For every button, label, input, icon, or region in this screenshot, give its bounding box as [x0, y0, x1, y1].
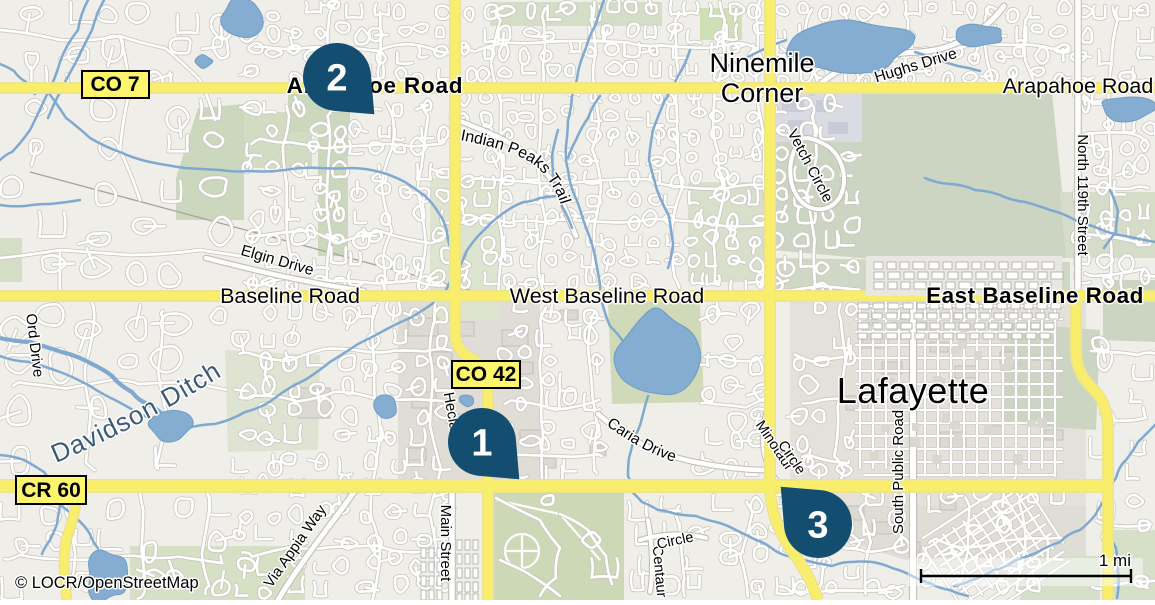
- svg-text:North 119th Street: North 119th Street: [1074, 134, 1091, 256]
- svg-text:3: 3: [807, 505, 828, 547]
- svg-text:South Public Road: South Public Road: [890, 410, 907, 534]
- svg-text:Corner: Corner: [721, 78, 804, 108]
- svg-text:Main Street: Main Street: [437, 505, 454, 583]
- svg-text:East Baseline Road: East Baseline Road: [926, 283, 1144, 308]
- svg-text:Arapahoe Road: Arapahoe Road: [1003, 74, 1154, 98]
- svg-text:Baseline Road: Baseline Road: [220, 284, 360, 308]
- svg-text:© LOCR/OpenStreetMap: © LOCR/OpenStreetMap: [15, 574, 199, 592]
- svg-text:Ninemile: Ninemile: [709, 48, 814, 78]
- svg-text:CO 42: CO 42: [456, 363, 517, 386]
- svg-text:Lafayette: Lafayette: [837, 370, 990, 411]
- svg-text:1: 1: [471, 423, 492, 465]
- svg-text:CO 7: CO 7: [90, 73, 139, 96]
- svg-text:2: 2: [326, 58, 347, 100]
- svg-text:CR 60: CR 60: [21, 479, 81, 502]
- svg-text:1 mi: 1 mi: [1099, 551, 1131, 570]
- svg-text:West Baseline Road: West Baseline Road: [510, 284, 704, 308]
